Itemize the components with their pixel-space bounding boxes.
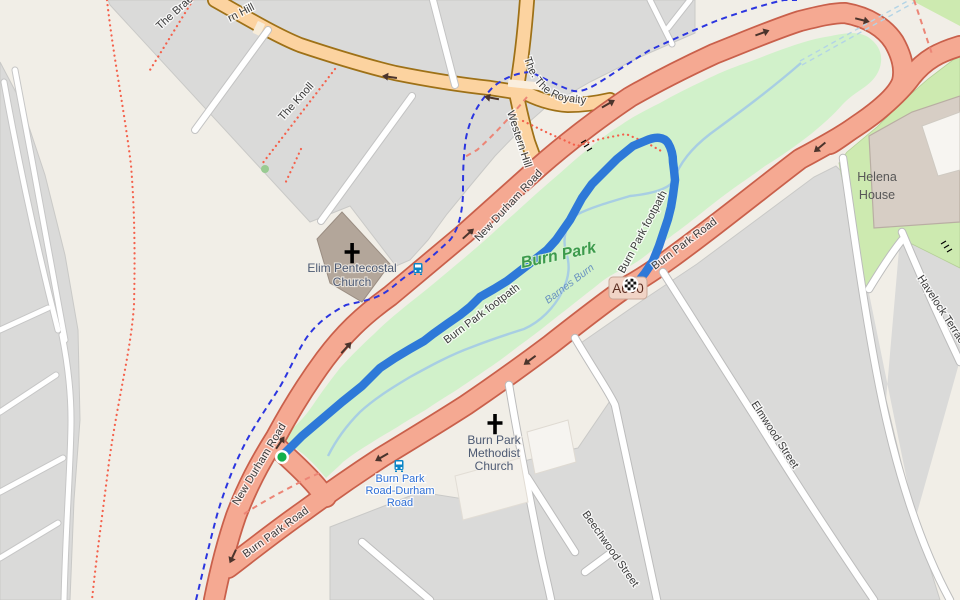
svg-text:Methodist: Methodist [468, 446, 521, 460]
svg-text:Burn Park: Burn Park [467, 433, 521, 447]
svg-text:Burn Park: Burn Park [376, 473, 425, 485]
svg-text:House: House [859, 188, 895, 202]
svg-text:Church: Church [333, 275, 372, 289]
svg-text:Elim Pentecostal: Elim Pentecostal [307, 261, 396, 275]
svg-text:Helena: Helena [857, 170, 897, 184]
svg-text:Church: Church [475, 459, 514, 473]
svg-text:Road: Road [387, 497, 413, 509]
svg-text:Road-Durham: Road-Durham [365, 485, 434, 497]
